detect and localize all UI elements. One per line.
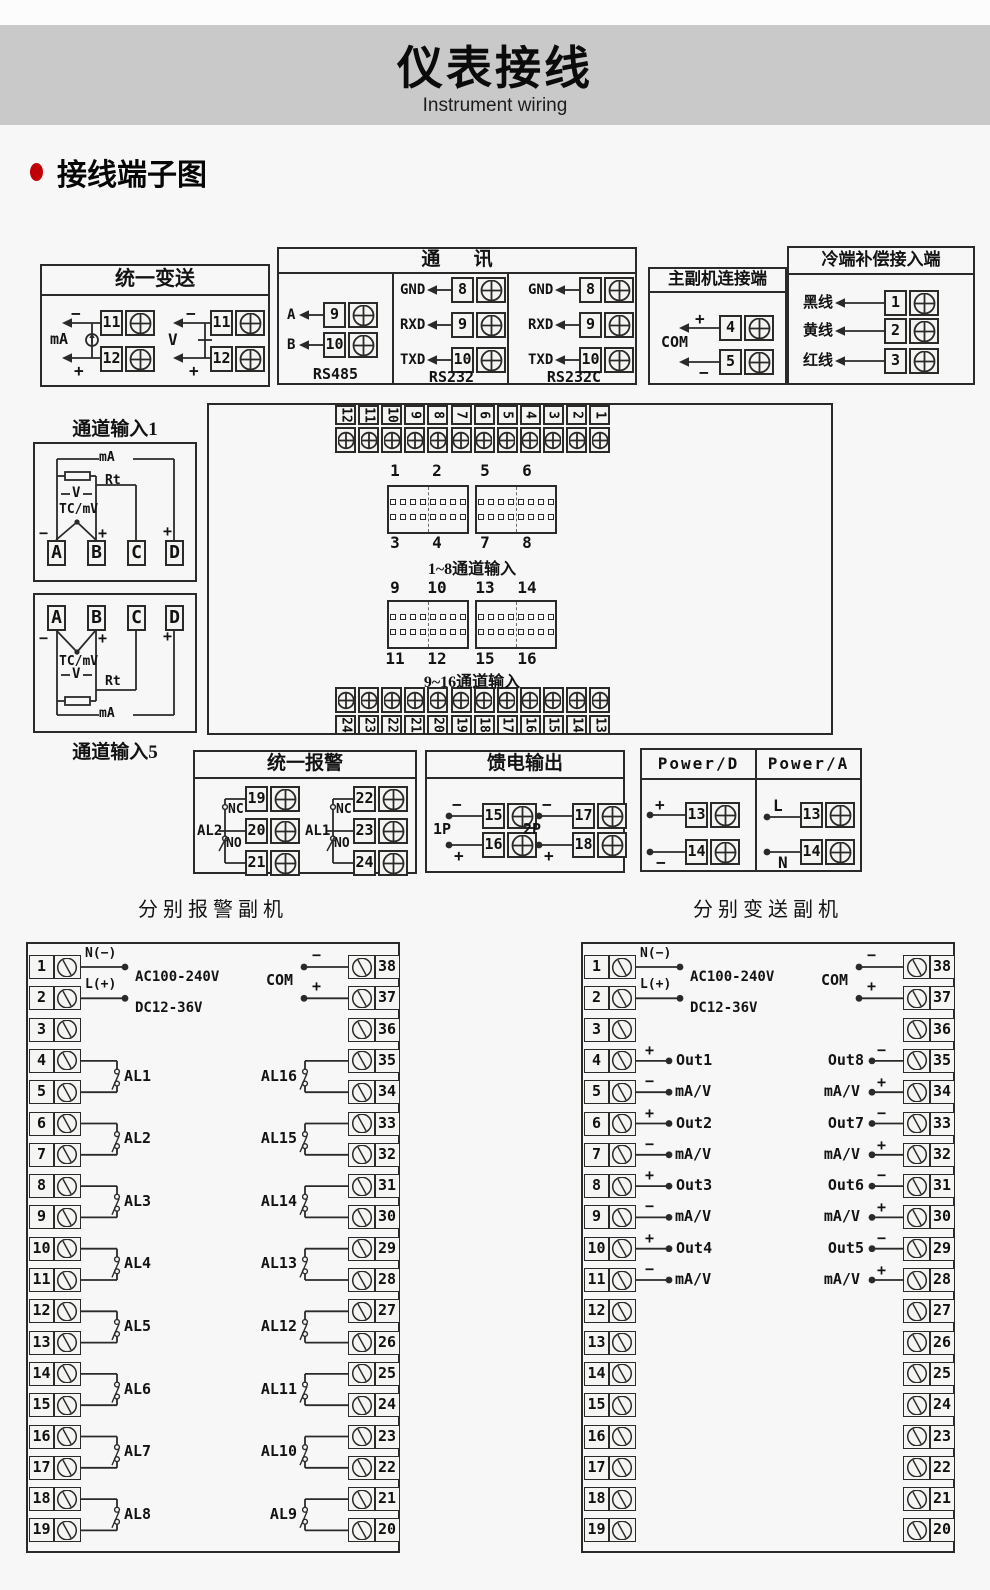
connector-pin <box>548 614 554 620</box>
screw-slot-icon <box>611 1458 633 1477</box>
terminal-number: 8 <box>584 1174 609 1198</box>
connector-channel-number: 7 <box>474 535 496 551</box>
box-channel5-label: 通道输入5 <box>33 737 197 764</box>
screw-slot-icon <box>56 1177 78 1196</box>
minus-sign: − <box>39 526 48 541</box>
screw-cross-icon <box>384 430 400 451</box>
screw-slot-icon <box>611 958 633 977</box>
strip-number-cell: 22 <box>381 715 402 735</box>
terminal-number: 9 <box>584 1205 609 1229</box>
terminal-number: 23 <box>375 1425 400 1449</box>
signal-label: TXD <box>528 353 553 367</box>
screw-slot-icon <box>56 1490 78 1509</box>
screw-slot-icon <box>351 1302 373 1321</box>
terminal-number: 37 <box>930 986 955 1010</box>
screw-slot-icon <box>351 1364 373 1383</box>
connector-channel-number: 13 <box>474 580 496 596</box>
screw-cross-icon <box>522 430 538 451</box>
comm-caption: RS232C <box>509 370 639 385</box>
connector-pin <box>420 629 426 635</box>
connector-pin <box>528 629 534 635</box>
screw-slot-icon <box>906 1458 928 1477</box>
screw-slot-icon <box>351 958 373 977</box>
box-comm: 通 讯A9B10RS485GND8RXD9TXD10RS232GND8RXD9T… <box>277 247 637 385</box>
terminal-screw <box>903 1456 930 1480</box>
terminal-number: 10 <box>323 332 346 358</box>
rt-label: Rt <box>105 474 121 487</box>
terminal: 8 <box>451 277 506 303</box>
terminal-number: 34 <box>375 1080 400 1104</box>
screw-slot-icon <box>611 1177 633 1196</box>
terminal: 14 <box>685 839 740 865</box>
box-unified-transmit-title: 统一变送 <box>42 266 268 296</box>
terminal-number: 24 <box>375 1393 400 1417</box>
comm-caption: RS485 <box>279 367 392 382</box>
plus-sign: + <box>655 797 665 813</box>
screw-slot-icon <box>351 1083 373 1102</box>
strip-terminal-number: 22 <box>384 717 399 733</box>
terminal-screw <box>744 315 774 341</box>
strip-terminal-number: 18 <box>477 717 492 733</box>
terminal-screw <box>609 955 636 979</box>
screw-cross-icon <box>430 690 446 711</box>
screw-slot-icon <box>56 1364 78 1383</box>
connector-pin <box>508 499 514 505</box>
screw-cross-icon <box>479 350 504 371</box>
terminal-number: 25 <box>930 1362 955 1386</box>
connector-pin <box>400 614 406 620</box>
connector-pin <box>400 514 406 520</box>
terminal-screw <box>604 312 634 338</box>
terminal: 4 <box>719 315 774 341</box>
input-terminal-C: C <box>127 540 146 566</box>
terminal-screw <box>348 1112 375 1136</box>
screw-slot-icon <box>906 1145 928 1164</box>
terminal: 9 <box>323 302 378 328</box>
output-label: Out1 <box>676 1053 712 1068</box>
section-heading: 接线端子图 <box>0 145 990 195</box>
terminal-screw <box>609 986 636 1010</box>
screw-slot-icon <box>906 1521 928 1540</box>
connector-channel-number: 1 <box>384 463 406 479</box>
terminal-number: 11 <box>29 1268 54 1292</box>
connector-pin <box>498 629 504 635</box>
terminal-screw <box>909 318 939 344</box>
terminal-number: 2 <box>29 986 54 1010</box>
terminal-screw <box>903 1049 930 1073</box>
terminal-screw <box>909 290 939 316</box>
terminal-number: 18 <box>29 1487 54 1511</box>
screw-cross-icon <box>351 335 376 356</box>
screw-cross-icon <box>912 351 937 372</box>
connector-pin <box>400 499 406 505</box>
connector-pin <box>548 629 554 635</box>
connector-pin <box>390 629 396 635</box>
terminal: 18 <box>572 832 627 858</box>
strip-screw-cell <box>589 427 610 453</box>
terminal-number: 32 <box>375 1143 400 1167</box>
alarm-group-label: AL2 <box>197 824 222 838</box>
strip-terminal: 17 <box>497 687 518 735</box>
screw-slot-icon <box>906 1208 928 1227</box>
unit-label: mA/V <box>675 1209 711 1224</box>
terminal: 8 <box>579 277 634 303</box>
terminal-number: 13 <box>685 802 708 828</box>
input-terminal-D: D <box>165 540 184 566</box>
signal-label: A <box>287 308 295 322</box>
plus-sign: + <box>645 1231 654 1246</box>
terminal-number: 19 <box>245 786 268 812</box>
box-master-slave-title: 主副机连接端 <box>650 269 785 293</box>
terminal-screw <box>348 332 378 358</box>
v-label: V <box>168 332 178 348</box>
terminal-number: 15 <box>584 1393 609 1417</box>
screw-slot-icon <box>906 1020 928 1039</box>
screw-slot-icon <box>351 1458 373 1477</box>
alarm-relay-label: AL15 <box>221 1131 297 1146</box>
screw-slot-icon <box>351 1177 373 1196</box>
terminal-number: 27 <box>930 1299 955 1323</box>
power-divider <box>755 780 757 870</box>
screw-slot-icon <box>56 1458 78 1477</box>
tc-label: TC/mV <box>59 503 98 516</box>
neutral-label: N(−) <box>85 947 116 960</box>
strip-terminal: 16 <box>520 687 541 735</box>
terminal-number: 13 <box>29 1331 54 1355</box>
strip-terminal-number: 7 <box>454 411 469 419</box>
strip-number-cell: 15 <box>543 715 564 735</box>
ac-range-label: AC100-240V <box>690 970 774 984</box>
connector-pin <box>450 514 456 520</box>
terminal-screw <box>348 1205 375 1229</box>
screw-cross-icon <box>747 318 772 339</box>
strip-terminal: 20 <box>427 687 448 735</box>
terminal-number: 20 <box>375 1518 400 1542</box>
terminal-number: 17 <box>29 1456 54 1480</box>
connector-pin <box>430 514 436 520</box>
terminal-number: 31 <box>930 1174 955 1198</box>
terminal-screw <box>609 1205 636 1229</box>
table-alarm-slave: 1382373364355346337328319301029112812271… <box>26 942 400 1553</box>
terminal-number: 6 <box>584 1112 609 1136</box>
connector-channel-number: 12 <box>426 651 448 667</box>
connector-pin <box>508 629 514 635</box>
terminal-screw <box>609 1518 636 1542</box>
screw-slot-icon <box>906 1302 928 1321</box>
screw-slot-icon <box>611 1396 633 1415</box>
screw-slot-icon <box>351 989 373 1008</box>
terminal-screw <box>609 1331 636 1355</box>
connector-pin <box>518 614 524 620</box>
terminal: 12 <box>210 346 265 372</box>
terminal-number: 32 <box>930 1143 955 1167</box>
screw-cross-icon <box>912 321 937 342</box>
connector-pin <box>430 614 436 620</box>
minus-sign: − <box>645 1199 654 1214</box>
connector-pin <box>528 614 534 620</box>
terminal-number: 29 <box>375 1237 400 1261</box>
screw-slot-icon <box>351 1521 373 1540</box>
connector-pin <box>420 614 426 620</box>
strip-terminal: 2 <box>566 405 587 453</box>
minus-sign: − <box>699 365 709 381</box>
terminal-screw <box>903 1143 930 1167</box>
channel-connector-block <box>387 485 469 534</box>
box-feed-output-title: 馈电输出 <box>427 752 623 779</box>
connector-half <box>516 602 555 647</box>
unit-label: mA/V <box>780 1147 860 1162</box>
connector-pin <box>518 514 524 520</box>
terminal-screw <box>348 1080 375 1104</box>
screw-slot-icon <box>56 1020 78 1039</box>
channel-range-caption: 1~8通道输入 <box>347 555 597 579</box>
screw-cross-icon <box>499 690 515 711</box>
alarm-relay-label: AL10 <box>221 1444 297 1459</box>
terminal-number: 20 <box>245 818 268 844</box>
terminal: 21 <box>245 850 300 876</box>
strip-terminal: 18 <box>474 687 495 735</box>
box-cold-comp: 冷端补偿接入端黑线1黄线2红线3 <box>787 246 975 385</box>
connector-pin <box>440 514 446 520</box>
input-terminal-B: B <box>87 540 106 566</box>
connector-channel-number: 11 <box>384 651 406 667</box>
terminal-number: 36 <box>930 1018 955 1042</box>
terminal-number: 14 <box>685 839 708 865</box>
plus-sign: + <box>877 1200 886 1215</box>
terminal-screw <box>378 786 408 812</box>
screw-slot-icon <box>351 1239 373 1258</box>
connector-pin <box>460 514 466 520</box>
screw-slot-icon <box>611 1364 633 1383</box>
terminal-screw <box>710 802 740 828</box>
terminal-number: 11 <box>100 310 123 336</box>
strip-terminal-number: 9 <box>407 411 422 419</box>
terminal: 14 <box>800 839 855 865</box>
screw-slot-icon <box>611 1427 633 1446</box>
terminal-number: 33 <box>930 1112 955 1136</box>
strip-number-cell: 21 <box>404 715 425 735</box>
terminal-screw <box>903 1299 930 1323</box>
screw-slot-icon <box>906 1239 928 1258</box>
screw-slot-icon <box>906 1271 928 1290</box>
plus-sign: + <box>163 524 172 539</box>
screw-slot-icon <box>906 1083 928 1102</box>
strip-terminal-number: 1 <box>592 411 607 419</box>
connector-pin <box>478 514 484 520</box>
channel-connector-block <box>387 600 469 649</box>
comm-col-1: GND8RXD9TXD10RS232 <box>392 274 509 383</box>
terminal-number: 5 <box>584 1080 609 1104</box>
terminal-number: 2 <box>584 986 609 1010</box>
table-transmit-slave-title: 分别变送副机 <box>581 893 955 922</box>
connector-pin <box>390 514 396 520</box>
terminal-screw <box>609 1080 636 1104</box>
screw-slot-icon <box>56 1114 78 1133</box>
screw-slot-icon <box>56 958 78 977</box>
screw-slot-icon <box>351 1208 373 1227</box>
screw-slot-icon <box>56 1083 78 1102</box>
terminal-number: 28 <box>930 1268 955 1292</box>
terminal: 9 <box>451 312 506 338</box>
terminal-number: 11 <box>584 1268 609 1292</box>
terminal-number: 9 <box>579 312 602 338</box>
terminal-number: 20 <box>930 1518 955 1542</box>
terminal-screw <box>54 1487 81 1511</box>
terminal: 22 <box>353 786 408 812</box>
screw-slot-icon <box>56 1051 78 1070</box>
terminal-number: 38 <box>930 955 955 979</box>
strip-number-cell: 6 <box>474 405 495 425</box>
terminal-number: 23 <box>353 818 376 844</box>
terminal-screw <box>825 802 855 828</box>
connector-pin <box>548 514 554 520</box>
terminal-screw <box>125 346 155 372</box>
terminal-number: 12 <box>584 1299 609 1323</box>
screw-slot-icon <box>611 1521 633 1540</box>
plus-sign: + <box>98 526 107 541</box>
terminal-number: 17 <box>584 1456 609 1480</box>
terminal-number: 9 <box>451 312 474 338</box>
terminal-screw <box>348 1237 375 1261</box>
terminal-screw <box>54 955 81 979</box>
strip-terminal: 5 <box>497 405 518 453</box>
minus-sign: − <box>877 1106 886 1121</box>
connector-pin <box>478 629 484 635</box>
screw-cross-icon <box>592 430 608 451</box>
strip-number-cell: 9 <box>404 405 425 425</box>
terminal-screw <box>903 1174 930 1198</box>
v-label: V <box>72 486 80 500</box>
connector-pin <box>508 614 514 620</box>
strip-terminal-number: 16 <box>523 717 538 733</box>
alarm-relay-label: AL2 <box>124 1131 151 1146</box>
terminal-number: 11 <box>210 310 233 336</box>
terminal-screw <box>903 1205 930 1229</box>
terminal-screw <box>903 1425 930 1449</box>
terminal-screw <box>54 1393 81 1417</box>
strip-terminal-number: 3 <box>546 411 561 419</box>
terminal-screw <box>609 1143 636 1167</box>
strip-terminal-number: 2 <box>569 411 584 419</box>
terminal-number: 3 <box>584 1018 609 1042</box>
plus-sign: + <box>645 1168 654 1183</box>
terminal-screw <box>604 277 634 303</box>
terminal: 10 <box>323 332 378 358</box>
terminal: 13 <box>685 802 740 828</box>
terminal-screw <box>597 803 627 829</box>
screw-cross-icon <box>545 430 561 451</box>
terminal-screw <box>903 1080 930 1104</box>
signal-label: GND <box>528 283 553 297</box>
terminal-number: 18 <box>572 832 595 858</box>
comm-caption: RS232 <box>394 370 509 385</box>
alarm-relay-label: AL9 <box>221 1507 297 1522</box>
terminal-number: 1 <box>584 955 609 979</box>
terminal-number: 21 <box>375 1487 400 1511</box>
terminal-number: 25 <box>375 1362 400 1386</box>
screw-cross-icon <box>545 690 561 711</box>
screw-cross-icon <box>828 805 853 826</box>
comm-col-2: GND8RXD9TXD10RS232C <box>507 274 639 383</box>
strip-number-cell: 16 <box>520 715 541 735</box>
terminal-screw <box>903 1112 930 1136</box>
screw-cross-icon <box>607 280 632 301</box>
minus-sign: − <box>39 631 48 646</box>
connector-half <box>428 487 467 532</box>
strip-number-cell: 20 <box>427 715 448 735</box>
screw-cross-icon <box>381 789 406 810</box>
strip-screw-cell <box>427 427 448 453</box>
plus-sign: + <box>877 1263 886 1278</box>
terminal-screw <box>348 1174 375 1198</box>
feed-group-label: 2P <box>523 822 541 837</box>
box-unified-transmit: 统一变送mA−+1112V−+1112 <box>40 264 270 387</box>
terminal-number: 8 <box>579 277 602 303</box>
table-transmit-slave-wires <box>583 944 957 1551</box>
table-transmit-slave-wires-art <box>583 944 957 1551</box>
terminal-screw <box>348 1299 375 1323</box>
plus-sign: + <box>877 1075 886 1090</box>
plus-sign: + <box>74 363 84 379</box>
terminal-number: 16 <box>584 1425 609 1449</box>
screw-slot-icon <box>351 1490 373 1509</box>
terminal-screw <box>54 1518 81 1542</box>
terminal-screw <box>609 1362 636 1386</box>
terminal-number: 4 <box>584 1049 609 1073</box>
screw-cross-icon <box>476 430 492 451</box>
screw-cross-icon <box>522 690 538 711</box>
unit-label: mA/V <box>780 1084 860 1099</box>
strip-number-cell: 24 <box>335 715 356 735</box>
wire-color-label: 黑线 <box>803 295 833 310</box>
screw-slot-icon <box>611 1208 633 1227</box>
terminal-screw <box>744 349 774 375</box>
strip-terminal-number: 5 <box>500 411 515 419</box>
plus-sign: + <box>312 979 321 994</box>
output-label: Out4 <box>676 1241 712 1256</box>
output-label: Out6 <box>780 1178 864 1193</box>
strip-terminal: 12 <box>335 405 356 453</box>
terminal-number: 8 <box>451 277 474 303</box>
strip-terminal: 11 <box>358 405 379 453</box>
terminal-number: 1 <box>884 290 907 316</box>
terminal-number: 27 <box>375 1299 400 1323</box>
connector-pin <box>410 629 416 635</box>
terminal-screw <box>348 1518 375 1542</box>
strip-terminal-number: 20 <box>430 717 445 733</box>
terminal-screw <box>54 1456 81 1480</box>
connector-pin <box>430 499 436 505</box>
screw-cross-icon <box>273 789 298 810</box>
terminal-screw <box>348 986 375 1010</box>
screw-cross-icon <box>600 806 625 827</box>
output-label: Out7 <box>780 1116 864 1131</box>
unit-label: mA/V <box>780 1272 860 1287</box>
terminal: 12 <box>100 346 155 372</box>
screw-cross-icon <box>338 430 354 451</box>
strip-terminal: 4 <box>520 405 541 453</box>
terminal-screw <box>348 1393 375 1417</box>
alarm-relay-label: AL1 <box>124 1069 151 1084</box>
terminal-number: 21 <box>245 850 268 876</box>
strip-terminal: 3 <box>543 405 564 453</box>
terminal-number: 12 <box>29 1299 54 1323</box>
terminal-screw <box>348 1268 375 1292</box>
strip-screw-cell <box>335 427 356 453</box>
terminal-screw <box>909 348 939 374</box>
terminal-number: 21 <box>930 1487 955 1511</box>
terminal: 9 <box>579 312 634 338</box>
